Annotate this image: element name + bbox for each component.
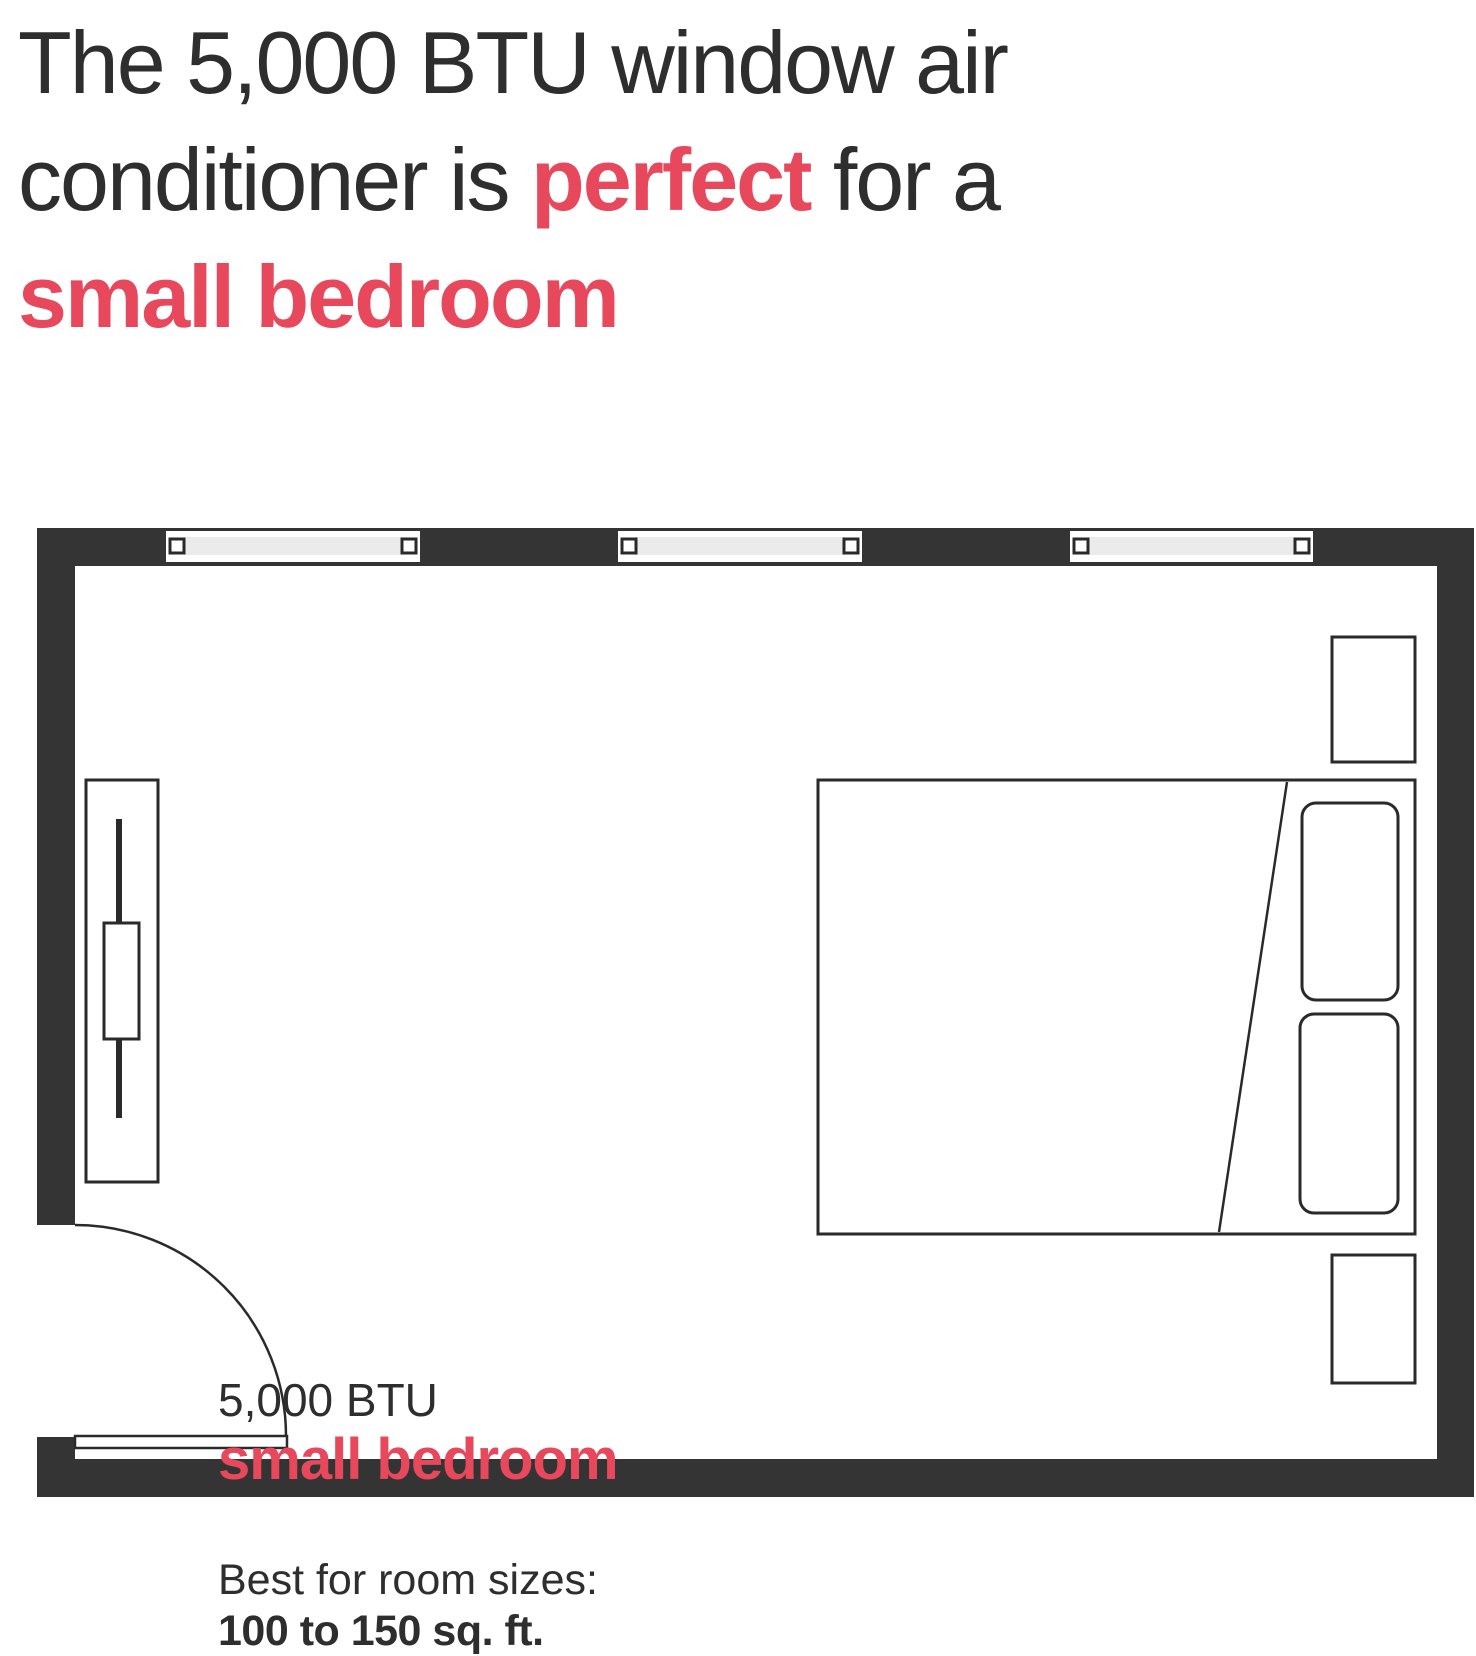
headline-text: The 5,000 BTU window air xyxy=(18,13,1007,112)
pillow-1 xyxy=(1302,803,1398,1000)
window-1 xyxy=(166,531,420,562)
window-3 xyxy=(1070,531,1313,562)
headline-line-2: conditioner is perfect for a xyxy=(18,121,1466,238)
wall-right xyxy=(1437,528,1474,1497)
plan-label-room: small bedroom xyxy=(218,1428,618,1492)
headline-highlight-perfect: perfect xyxy=(531,130,810,229)
door-jamb xyxy=(37,1437,75,1459)
headline: The 5,000 BTU window air conditioner is … xyxy=(0,0,1476,355)
ac-control-box xyxy=(104,923,139,1039)
headline-text: for a xyxy=(810,130,999,229)
nightstand-top xyxy=(1332,637,1415,762)
window-2 xyxy=(618,531,862,562)
pillow-2 xyxy=(1300,1014,1398,1213)
plan-label-best: Best for room sizes: xyxy=(218,1554,618,1606)
floorplan-drawing xyxy=(0,500,1476,1500)
nightstand-bottom xyxy=(1332,1255,1415,1383)
plan-label-btu: 5,000 BTU xyxy=(218,1372,618,1428)
wall-left xyxy=(37,528,75,1225)
windows xyxy=(166,531,1313,562)
plan-label-range: 100 to 150 sq. ft. xyxy=(218,1606,618,1656)
headline-line-1: The 5,000 BTU window air xyxy=(18,4,1466,121)
headline-text: conditioner is xyxy=(18,130,531,229)
bed xyxy=(818,780,1415,1234)
air-conditioner xyxy=(86,780,158,1182)
floorplan: 5,000 BTU small bedroom Best for room si… xyxy=(0,500,1476,1500)
plan-label: 5,000 BTU small bedroom Best for room si… xyxy=(218,1372,618,1656)
headline-line-3: small bedroom xyxy=(18,238,1466,355)
